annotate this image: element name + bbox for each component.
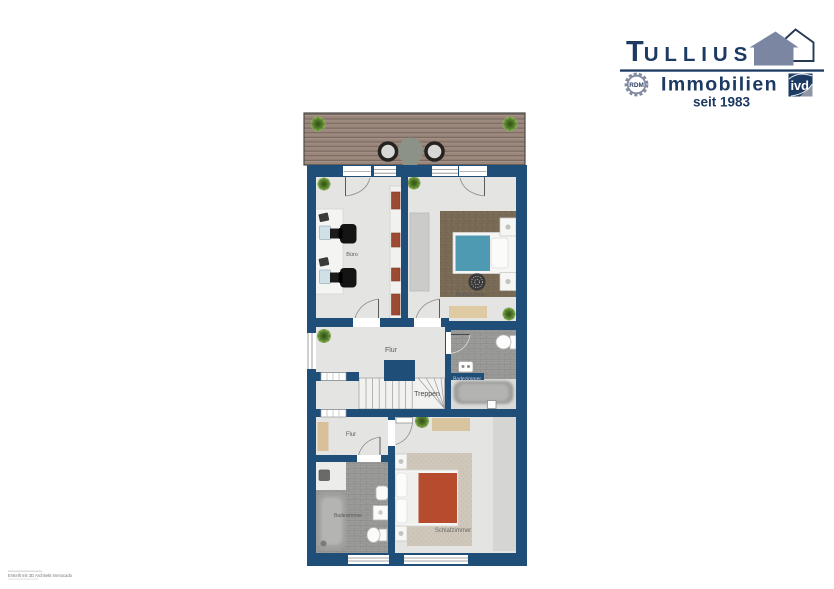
svg-text:Badezimmer: Badezimmer bbox=[334, 513, 362, 519]
svg-text:ivd: ivd bbox=[791, 78, 810, 93]
svg-text:Treppen: Treppen bbox=[414, 391, 440, 398]
svg-text:Flur: Flur bbox=[346, 432, 356, 438]
svg-text:Erstellt mit 3D Architekt Immo: Erstellt mit 3D Architekt Immocado bbox=[8, 573, 73, 578]
svg-text:Immobilien: Immobilien bbox=[661, 74, 778, 96]
svg-text:Kinderzimmer: Kinderzimmer bbox=[456, 292, 487, 298]
svg-text:Flur: Flur bbox=[385, 347, 398, 354]
svg-text:Büro: Büro bbox=[346, 252, 358, 258]
svg-text:RDM: RDM bbox=[629, 82, 644, 89]
svg-text:seit 1983: seit 1983 bbox=[693, 95, 751, 110]
svg-text:Schlafzimmer: Schlafzimmer bbox=[435, 528, 471, 534]
svg-text:Badezimmer: Badezimmer bbox=[453, 377, 481, 383]
